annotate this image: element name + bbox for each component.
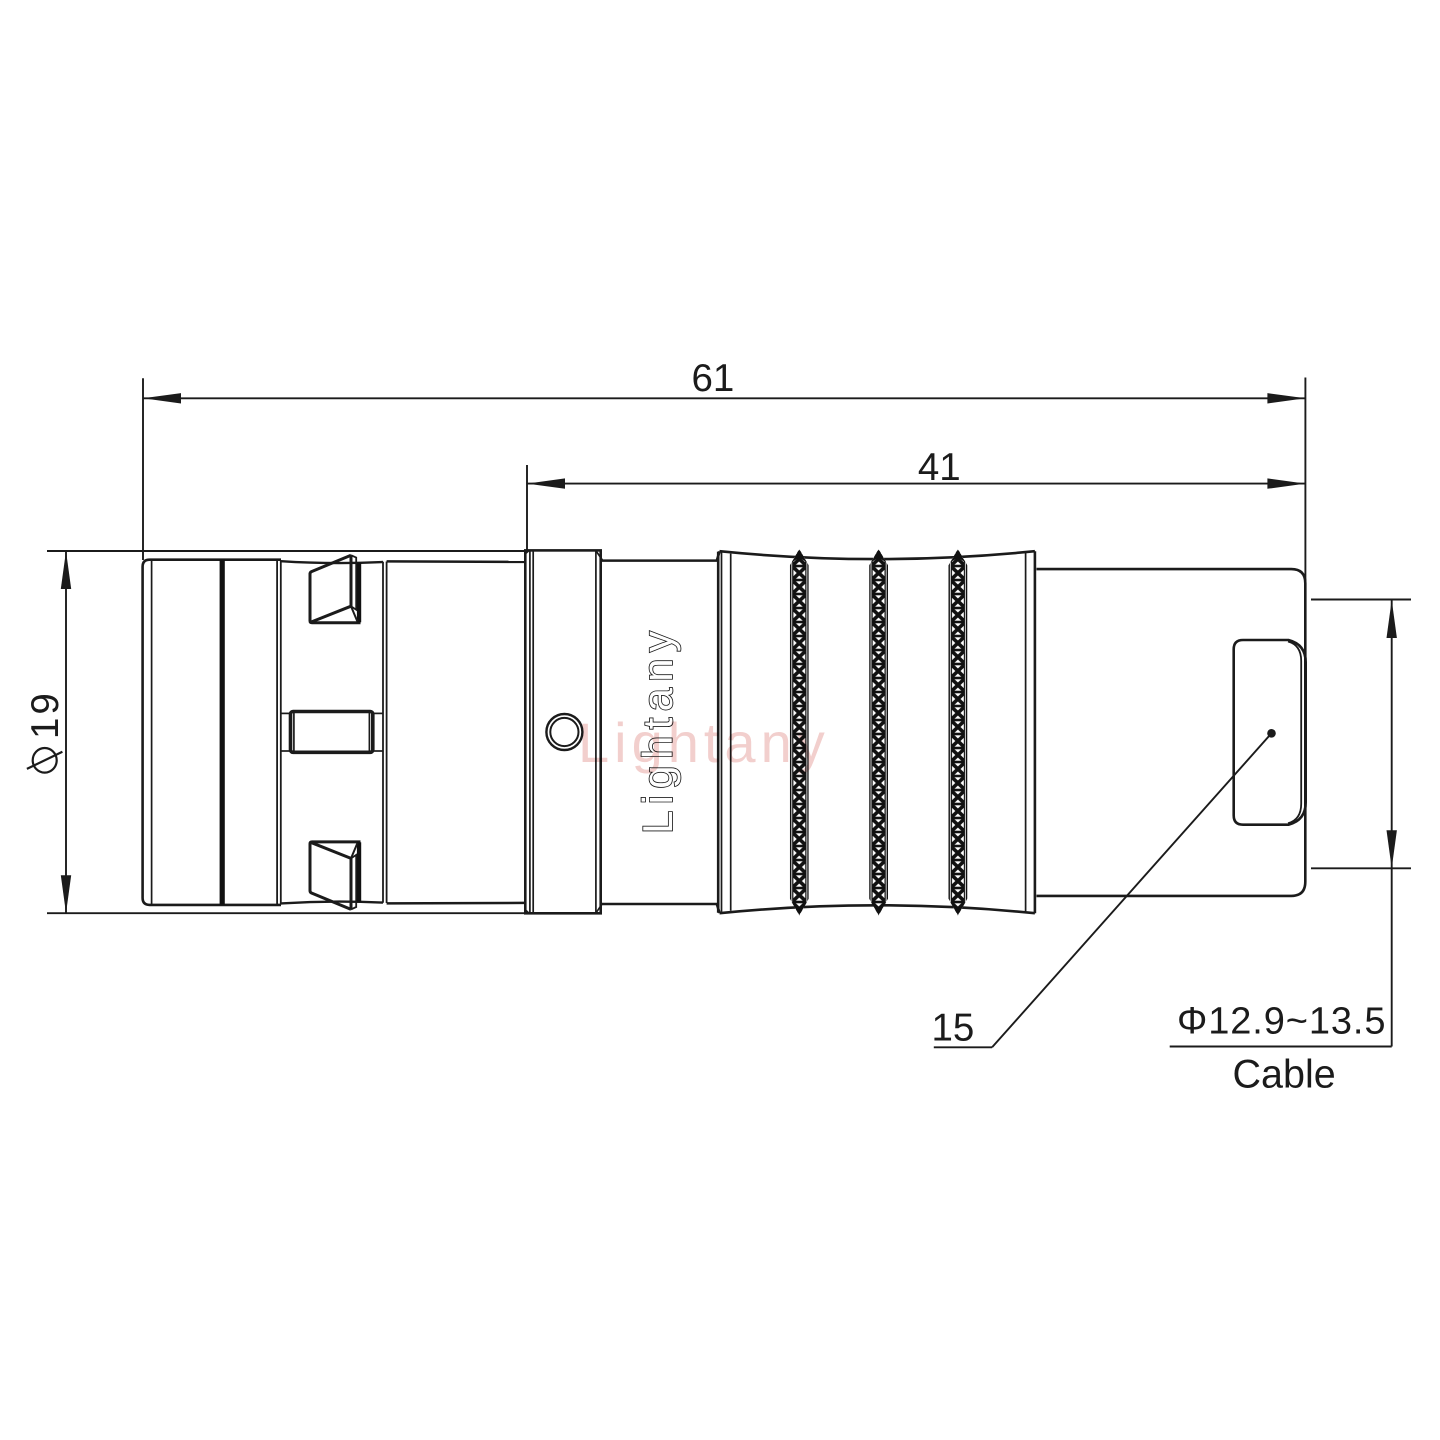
svg-text:Lightany: Lightany — [578, 711, 830, 774]
svg-text:Φ12.9~13.5: Φ12.9~13.5 — [1177, 1001, 1386, 1043]
svg-text:61: 61 — [692, 357, 735, 400]
svg-text:15: 15 — [932, 1007, 975, 1050]
svg-text:41: 41 — [918, 446, 961, 489]
svg-text:Cable: Cable — [1233, 1053, 1336, 1097]
svg-text:19: 19 — [24, 690, 67, 739]
